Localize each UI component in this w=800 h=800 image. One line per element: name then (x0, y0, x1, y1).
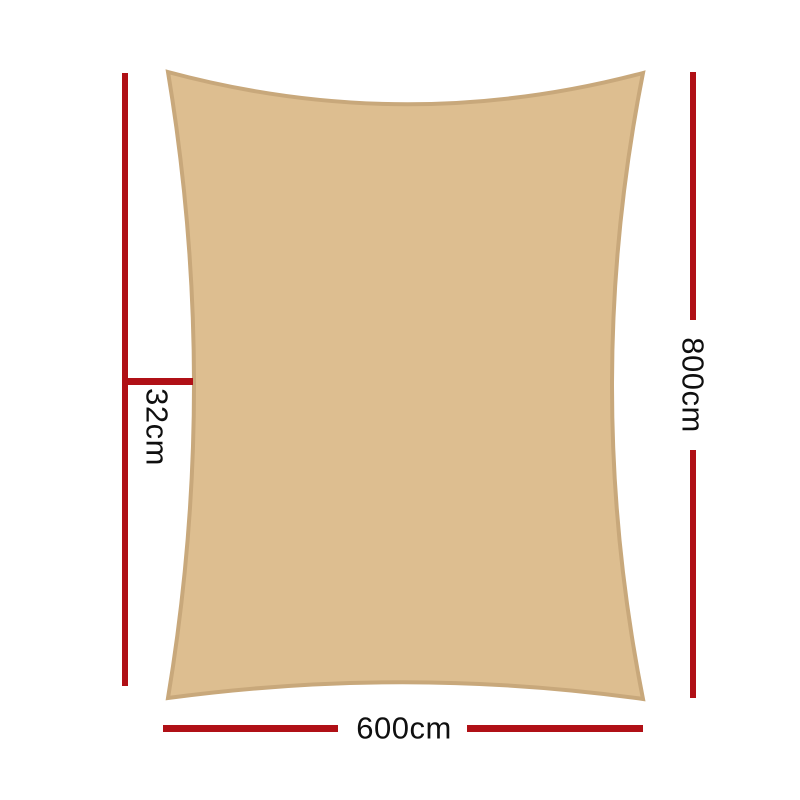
offset-dimension-tick (122, 378, 193, 385)
shade-sail-dimension-diagram: 800cm 32cm 600cm (0, 0, 800, 800)
height-dimension-line-upper (690, 72, 696, 320)
offset-dimension-label: 32cm (142, 388, 173, 466)
width-dimension-line-left (163, 725, 338, 732)
height-dimension-line-lower (690, 450, 696, 698)
width-dimension-label: 600cm (356, 713, 452, 744)
width-dimension-line-right (467, 725, 643, 732)
sail-fabric-shape (168, 72, 643, 699)
height-dimension-label: 800cm (678, 337, 709, 433)
